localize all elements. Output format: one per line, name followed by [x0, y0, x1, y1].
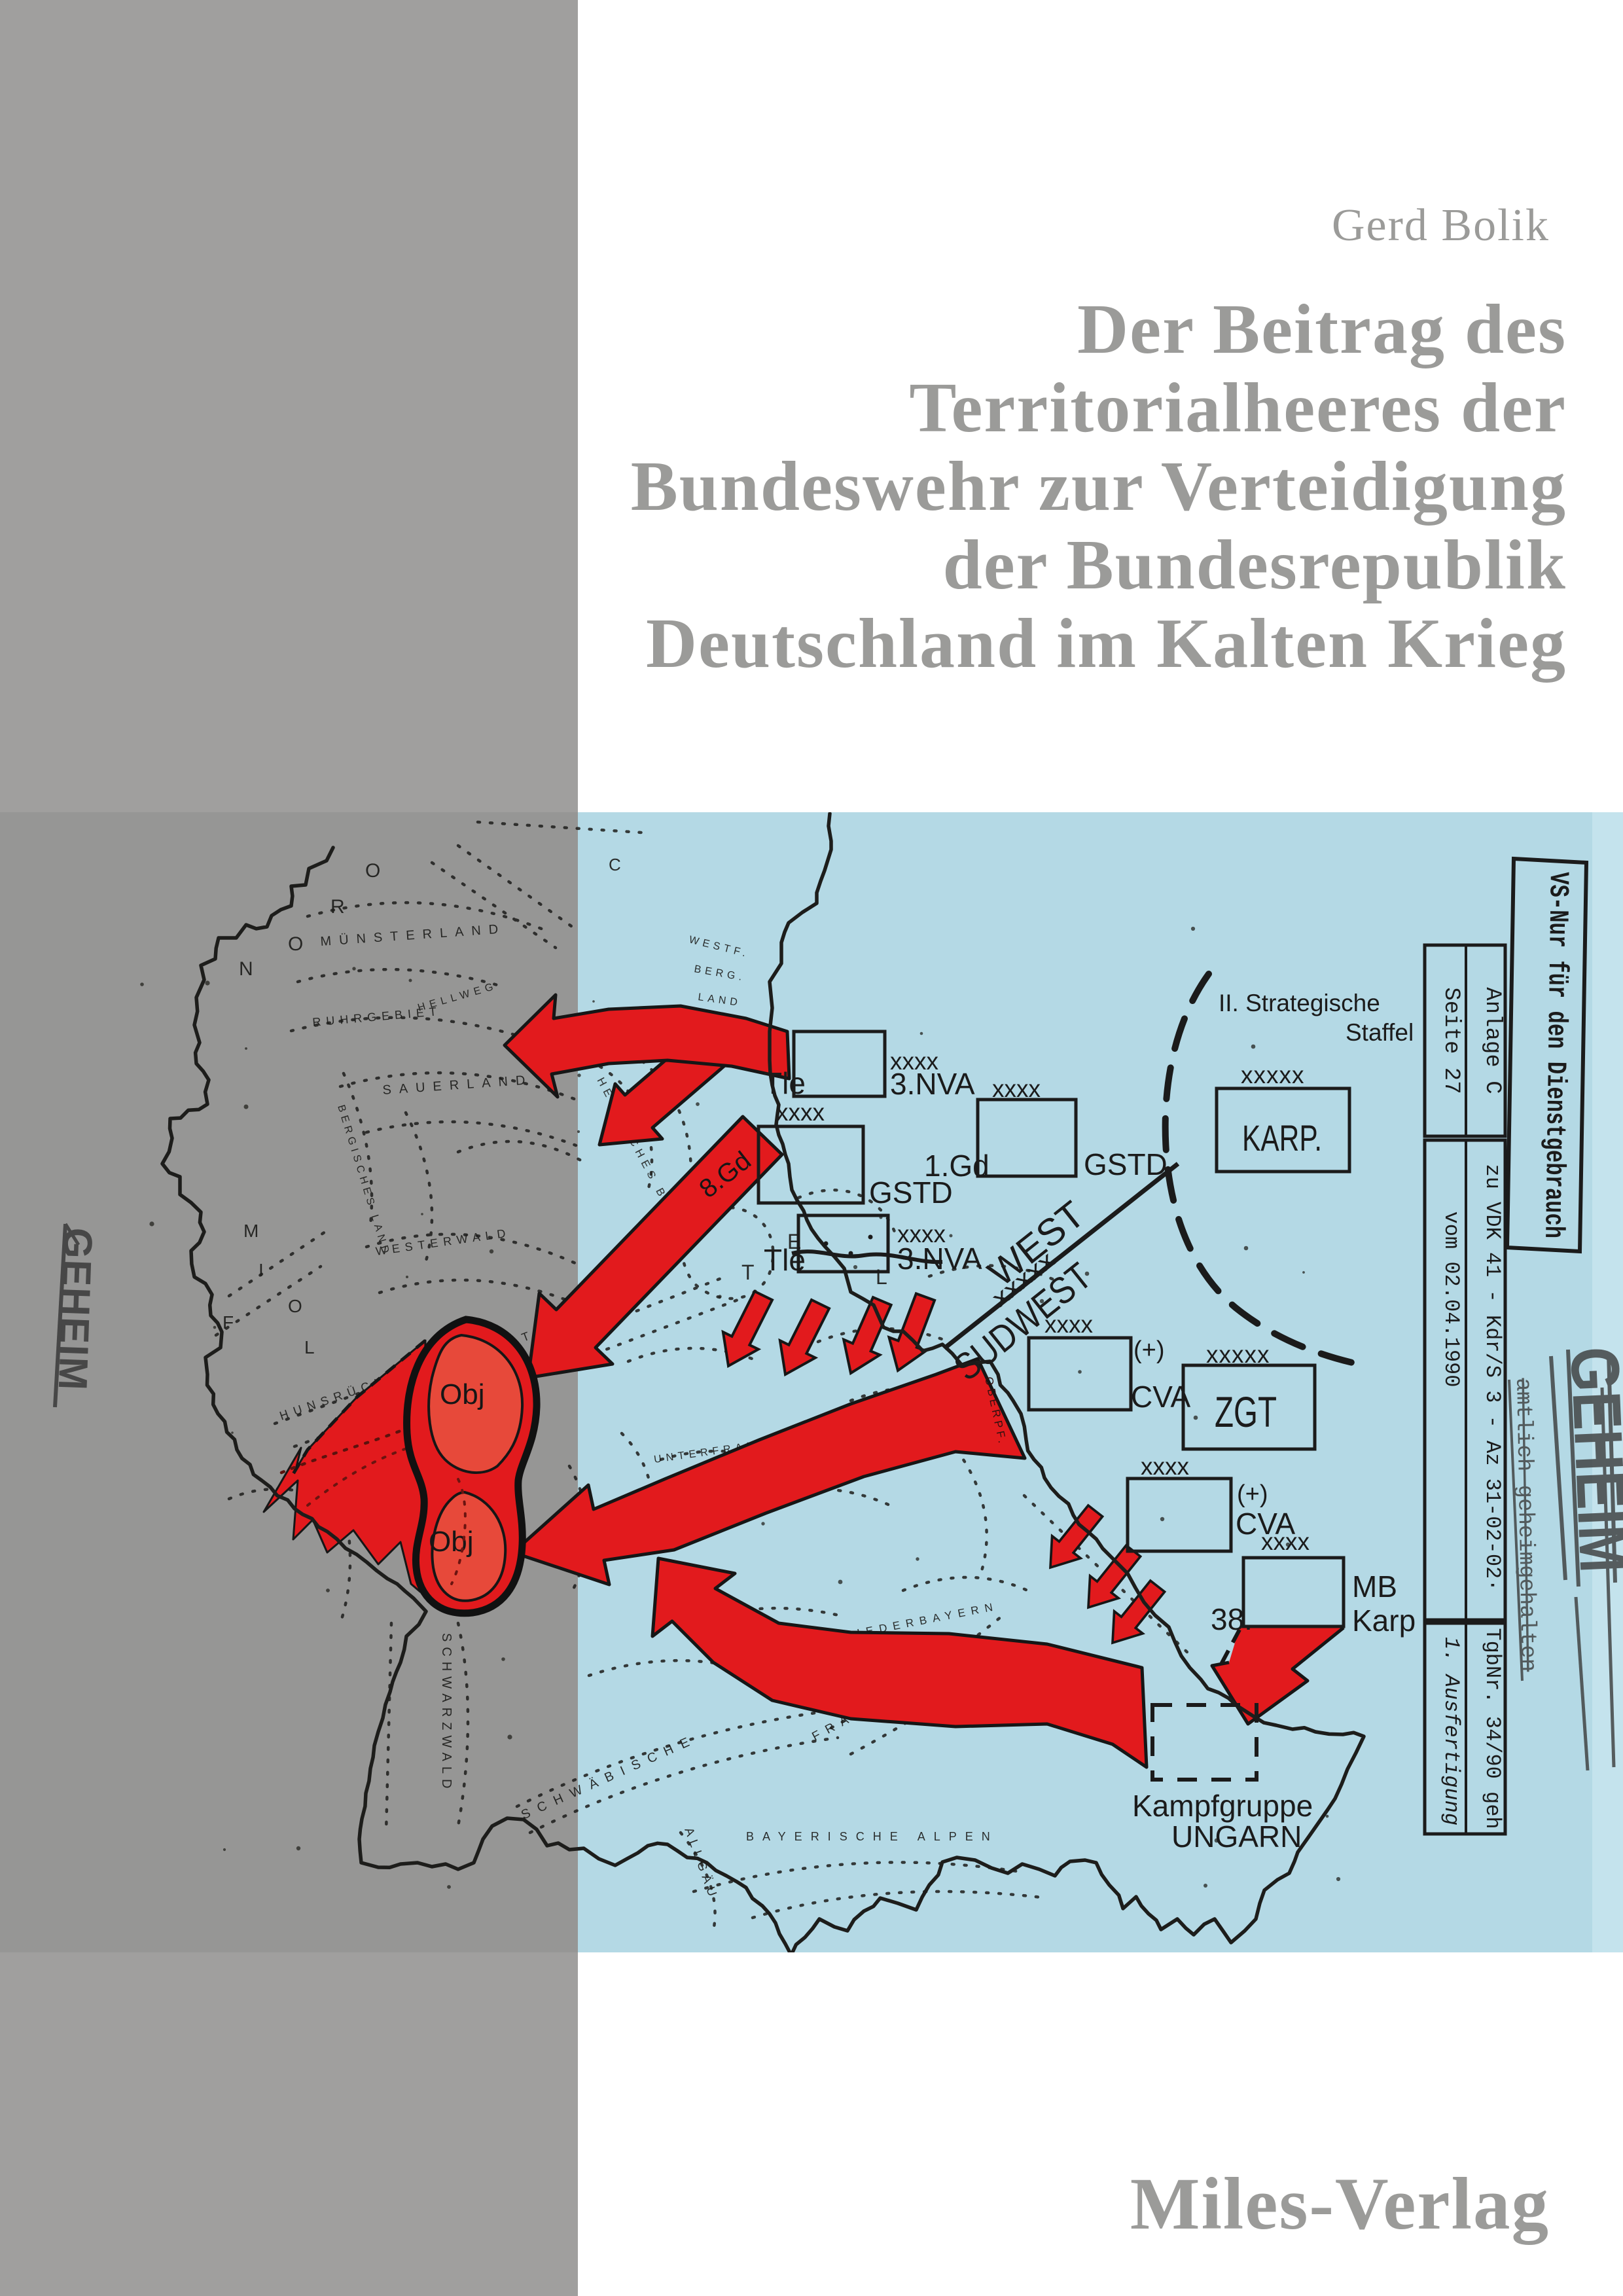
svg-text:LAND: LAND — [697, 992, 741, 1009]
svg-text:(+): (+) — [1133, 1336, 1165, 1364]
svg-text:Obj: Obj — [440, 1378, 484, 1410]
svg-text:TgbNr. 34/90 geh: TgbNr. 34/90 geh — [1480, 1628, 1505, 1829]
svg-text:xxxxx: xxxxx — [1206, 1341, 1270, 1368]
svg-text:O: O — [365, 860, 388, 882]
svg-text:KARP.: KARP. — [1242, 1117, 1322, 1158]
svg-text:O: O — [288, 1296, 310, 1316]
svg-text:Obj: Obj — [429, 1526, 473, 1558]
svg-text:(+): (+) — [1237, 1480, 1268, 1508]
svg-text:C: C — [609, 855, 629, 874]
svg-text:UNGARN: UNGARN — [1171, 1820, 1302, 1854]
svg-text:vom 02.04.1990: vom 02.04.1990 — [1439, 1211, 1463, 1388]
svg-text:xxxx: xxxx — [776, 1099, 825, 1126]
svg-text:MB: MB — [1352, 1570, 1397, 1604]
svg-text:xxxx: xxxx — [1141, 1453, 1190, 1480]
svg-text:Karp: Karp — [1352, 1604, 1416, 1638]
svg-text:L: L — [304, 1337, 323, 1357]
svg-text:ALLGÄU: ALLGÄU — [681, 1826, 721, 1903]
svg-text:Tle: Tle — [764, 1066, 806, 1100]
svg-text:BERGISCHES LAND: BERGISCHES LAND — [335, 1103, 392, 1258]
svg-text:3.NVA: 3.NVA — [890, 1067, 975, 1101]
svg-text:GSTD: GSTD — [1084, 1147, 1168, 1181]
svg-text:BERG.: BERG. — [693, 963, 747, 984]
svg-text:SAUERLAND: SAUERLAND — [382, 1073, 533, 1098]
svg-text:F: F — [223, 1312, 241, 1333]
svg-text:Anlage C: Anlage C — [1480, 987, 1505, 1094]
svg-text:L: L — [876, 1265, 895, 1289]
svg-text:xxxx: xxxx — [1261, 1528, 1310, 1555]
svg-text:ZGT: ZGT — [1215, 1388, 1277, 1436]
svg-text:1.Gd: 1.Gd — [924, 1149, 990, 1183]
svg-text:I: I — [259, 1260, 272, 1280]
svg-text:T: T — [741, 1261, 762, 1284]
svg-text:R: R — [330, 896, 353, 918]
svg-text:xxxxx: xxxxx — [1241, 1062, 1305, 1088]
svg-text:MÜNSTERLAND: MÜNSTERLAND — [320, 922, 507, 949]
svg-text:1. Ausfertigung: 1. Ausfertigung — [1439, 1637, 1463, 1825]
svg-text:WESTF.: WESTF. — [688, 934, 751, 960]
svg-text:38.: 38. — [1211, 1602, 1253, 1636]
svg-text:M: M — [243, 1221, 266, 1241]
svg-text:Tle: Tle — [764, 1243, 806, 1277]
svg-text:O: O — [288, 933, 311, 955]
svg-text:Staffel: Staffel — [1346, 1019, 1414, 1046]
svg-text:xxxx: xxxx — [992, 1075, 1041, 1102]
svg-text:Kampfgruppe: Kampfgruppe — [1132, 1789, 1313, 1823]
svg-text:CVA: CVA — [1131, 1380, 1190, 1414]
svg-text:N: N — [239, 958, 261, 980]
svg-text:zu VDK 41 - Kdr/S 3 - Az 31-02: zu VDK 41 - Kdr/S 3 - Az 31-02-02· — [1480, 1164, 1505, 1592]
svg-text:SCHWÄBISCHE: SCHWÄBISCHE — [519, 1732, 700, 1823]
svg-text:II. Strategische: II. Strategische — [1219, 990, 1380, 1016]
svg-text:VS-Nur für den Dienstgebrauch: VS-Nur für den Dienstgebrauch — [1537, 872, 1574, 1239]
svg-text:HELLWEG: HELLWEG — [416, 980, 499, 1014]
svg-text:BAYERISCHE ALPEN: BAYERISCHE ALPEN — [746, 1830, 999, 1843]
svg-text:Seite 27: Seite 27 — [1438, 987, 1463, 1094]
svg-text:SCHWARZWALD: SCHWARZWALD — [439, 1633, 454, 1793]
